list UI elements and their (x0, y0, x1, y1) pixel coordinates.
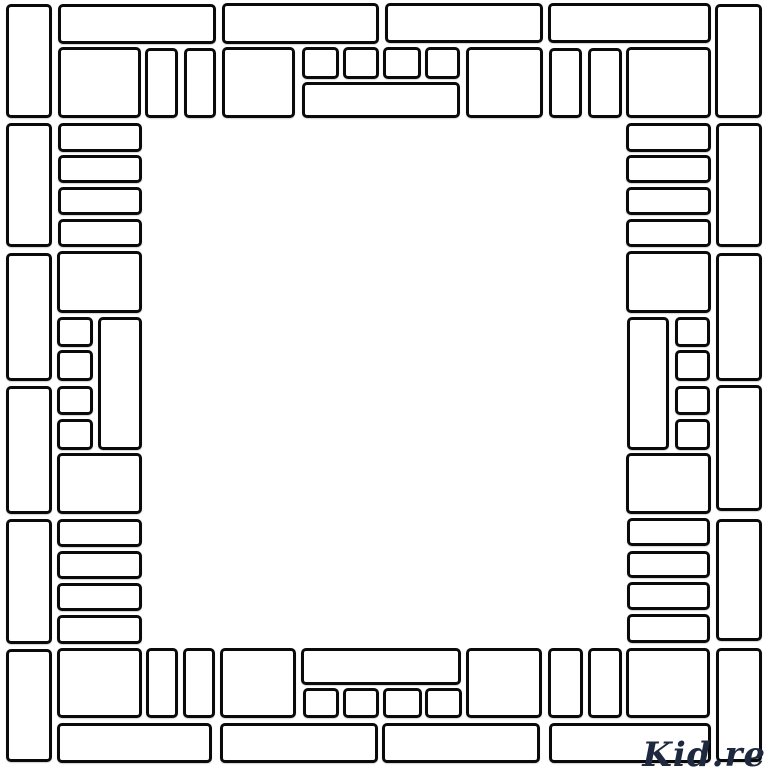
frame-tile (98, 317, 142, 450)
frame-tile (6, 4, 52, 118)
frame-tile (145, 48, 178, 118)
frame-tile (626, 123, 711, 152)
frame-tile (716, 385, 762, 511)
frame-tile (57, 519, 142, 547)
frame-tile (675, 419, 710, 450)
frame-tile (626, 187, 711, 215)
frame-tile (343, 47, 379, 79)
frame-tile (627, 518, 710, 546)
frame-tile (588, 648, 622, 718)
frame-tile (303, 688, 339, 718)
frame-tile (627, 614, 710, 643)
frame-tile (58, 187, 142, 215)
frame-tile (385, 3, 543, 43)
frame-tile (57, 615, 142, 644)
frame-tile (675, 386, 710, 415)
frame-tile (548, 648, 583, 718)
frame-tile (222, 47, 295, 118)
frame-tile (184, 48, 216, 118)
frame-tile (57, 723, 212, 763)
frame-tile (343, 688, 379, 718)
frame-tile (626, 155, 711, 183)
frame-tile (466, 648, 542, 718)
frame-tile (6, 386, 52, 514)
frame-tile (301, 648, 461, 685)
frame-tile (627, 551, 710, 578)
frame-tile (626, 251, 711, 313)
frame-tile (425, 688, 462, 718)
frame-tile (6, 253, 52, 381)
frame-tile (220, 648, 296, 718)
frame-tile (57, 648, 142, 718)
frame-tile (57, 419, 93, 450)
watermark-text: Kid.re (642, 738, 766, 768)
frame-tile (58, 155, 142, 183)
frame-tile (57, 551, 142, 579)
frame-tile (588, 48, 622, 118)
frame-tile (222, 3, 379, 44)
frame-tile (425, 47, 460, 79)
frame-tile (58, 123, 142, 152)
frame-tile (302, 47, 339, 79)
frame-tile (675, 317, 710, 347)
frame-tile (548, 3, 711, 43)
frame-tile (626, 648, 710, 718)
frame-tile (715, 4, 762, 118)
frame-tile (57, 386, 93, 415)
frame-tile (57, 317, 93, 347)
frame-tile (146, 648, 178, 718)
frame-tile (57, 350, 93, 381)
frame-tile (383, 688, 422, 718)
frame-tile (57, 453, 142, 514)
frame-tile (383, 47, 421, 79)
frame-tile (716, 519, 762, 641)
frame-tile (675, 350, 710, 381)
frame-tile (220, 723, 378, 763)
frame-tile (716, 123, 762, 247)
frame-tile (302, 82, 460, 118)
frame-tile (6, 649, 52, 762)
coloring-frame-canvas: Kid.re (0, 0, 768, 768)
frame-tile (627, 317, 669, 450)
frame-tile (716, 253, 762, 381)
frame-tile (6, 519, 52, 644)
frame-tile (549, 48, 582, 118)
frame-tile (626, 453, 711, 514)
frame-tile (466, 47, 543, 118)
frame-tile (58, 219, 142, 247)
frame-tile (382, 723, 540, 763)
frame-tile (57, 583, 142, 611)
frame-tile (57, 251, 142, 313)
frame-tile (626, 47, 711, 118)
frame-tile (183, 648, 215, 718)
frame-tile (626, 219, 711, 247)
frame-tile (627, 582, 710, 610)
frame-tile (6, 123, 52, 247)
frame-tile (58, 4, 216, 44)
frame-tile (58, 47, 141, 118)
